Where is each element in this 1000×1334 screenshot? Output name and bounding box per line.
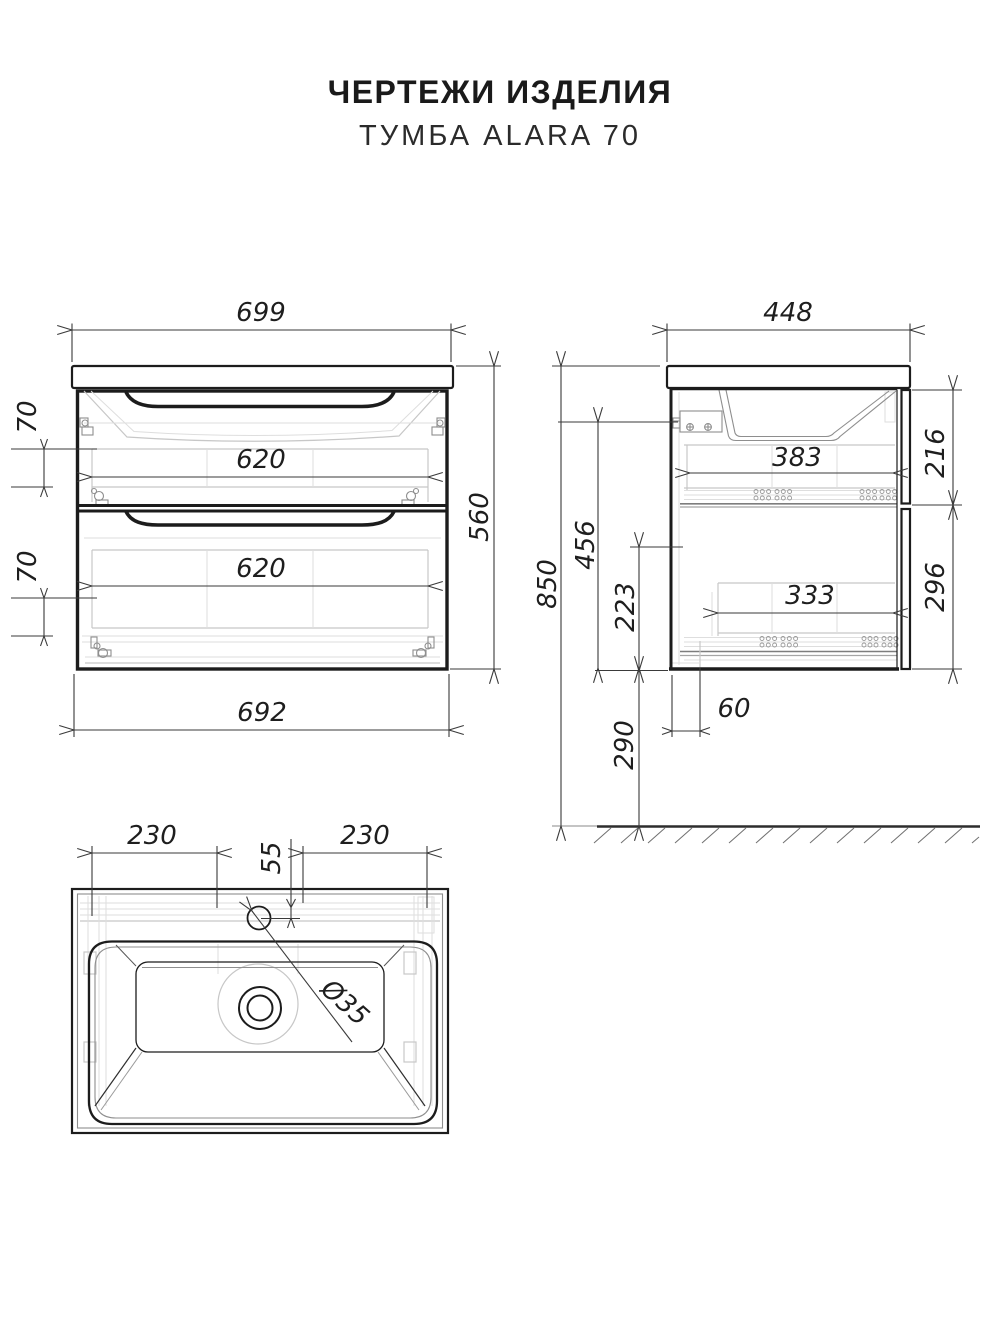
- page-subtitle: ТУМБА ALARA 70: [0, 120, 1000, 153]
- side-drawer-front-bottom: [902, 509, 911, 669]
- dim-side-interior-height: 456: [571, 520, 601, 570]
- dim-side-top-drawer-front: 216: [921, 428, 951, 478]
- dim-front-opening-height-top: 70: [13, 400, 43, 433]
- front-view: 699 70 620 70 620 692: [11, 298, 501, 737]
- dim-side-bottom-drawer-depth: 333: [785, 581, 835, 611]
- dim-side-depth: 448: [763, 298, 813, 328]
- front-countertop: [72, 366, 453, 388]
- technical-drawing: 699 70 620 70 620 692: [0, 0, 1000, 1334]
- ground-line: [552, 826, 980, 843]
- side-view: 448 216 296 383 333 850 456: [533, 298, 980, 843]
- dim-side-bottom-inset: 60: [717, 694, 750, 724]
- dim-side-floor-clearance: 290: [610, 720, 640, 770]
- dim-front-opening-height-bottom: 70: [13, 550, 43, 583]
- dim-sink-right-offset: 230: [340, 821, 390, 851]
- dim-side-slide-offset: 223: [611, 582, 641, 632]
- dim-front-top-width: 699: [236, 298, 286, 328]
- sink-outline: [72, 889, 448, 1133]
- dim-front-opening-width-top: 620: [236, 445, 286, 475]
- drawing-sheet: ЧЕРТЕЖИ ИЗДЕЛИЯ ТУМБА ALARA 70: [0, 0, 1000, 1334]
- sink-top-view: 230 230 55 Ø35: [72, 821, 448, 1133]
- page-title: ЧЕРТЕЖИ ИЗДЕЛИЯ: [0, 74, 1000, 111]
- side-drawer-front-top: [902, 390, 911, 504]
- dim-front-opening-width-bottom: 620: [236, 554, 286, 584]
- dim-sink-faucet-offset: 55: [257, 841, 287, 874]
- dim-sink-left-offset: 230: [127, 821, 177, 851]
- dim-side-total-height: 850: [533, 559, 563, 609]
- dim-front-height: 560: [465, 492, 495, 542]
- dim-front-body-width: 692: [237, 698, 287, 728]
- sheet-header: ЧЕРТЕЖИ ИЗДЕЛИЯ ТУМБА ALARA 70: [0, 74, 1000, 153]
- front-body: [78, 391, 448, 669]
- dim-side-bottom-drawer-front: 296: [921, 562, 951, 612]
- dim-side-top-drawer-depth: 383: [772, 443, 822, 473]
- side-countertop: [667, 366, 910, 388]
